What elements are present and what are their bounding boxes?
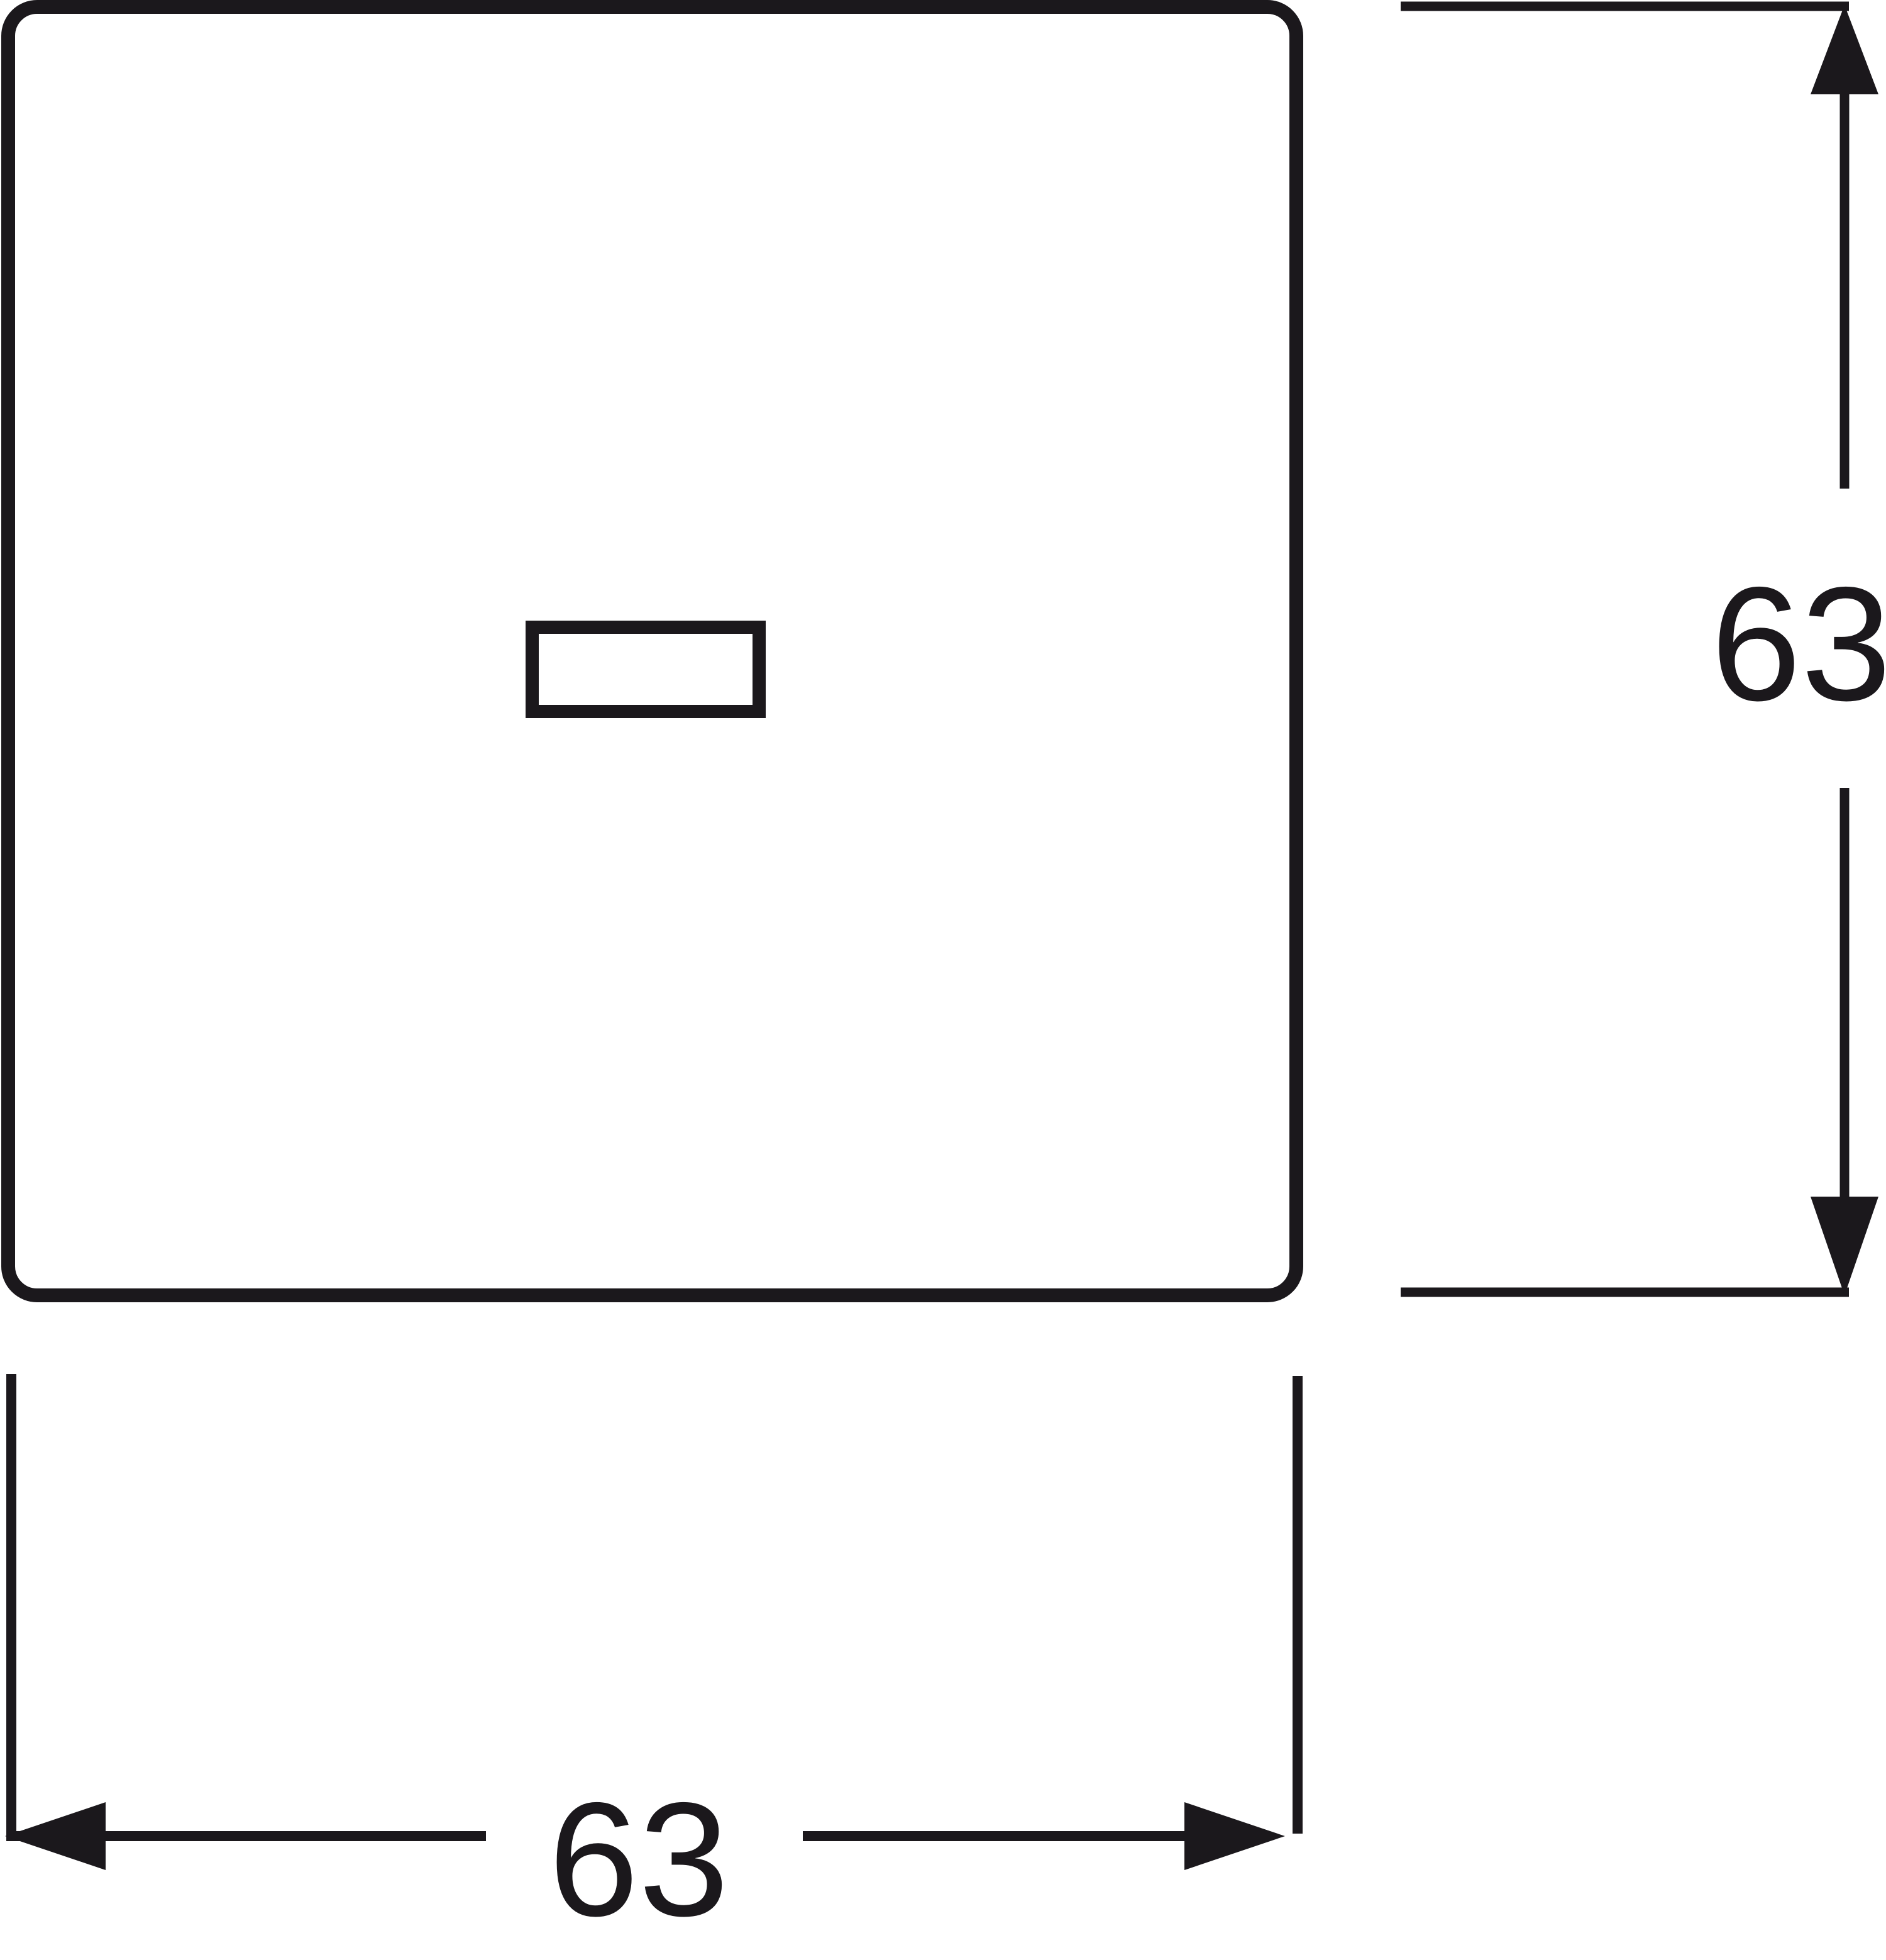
indicator-window [532, 628, 759, 712]
arrowhead-right-icon [1184, 1802, 1285, 1870]
arrowhead-up-icon [1811, 5, 1878, 94]
height-dimension-label: 63 [1711, 553, 1886, 734]
arrowhead-down-icon [1811, 1197, 1878, 1295]
stroke-group [8, 6, 1849, 1841]
dimension-drawing-page: 63 63 [0, 0, 1886, 1960]
width-dimension-label: 63 [549, 1768, 729, 1950]
fill-group: 63 63 [5, 5, 1886, 1950]
arrowhead-left-icon [5, 1802, 106, 1870]
cover-plate-outline [8, 7, 1296, 1295]
dimension-diagram: 63 63 [0, 0, 1886, 1960]
